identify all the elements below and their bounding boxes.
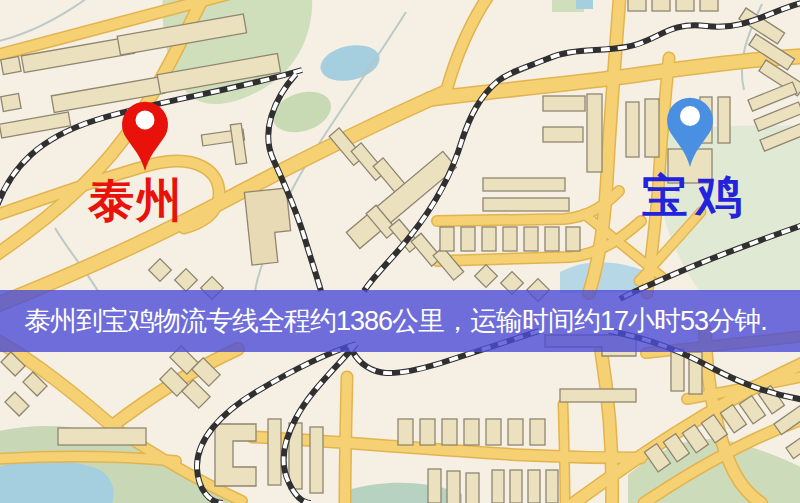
map-canvas — [0, 0, 800, 503]
route-info-text: 泰州到宝鸡物流专线全程约1386公里，运输时间约17小时53分钟. — [24, 303, 767, 339]
origin-pin-hole — [136, 111, 155, 130]
destination-pin-hole — [680, 106, 700, 126]
route-info-banner: 泰州到宝鸡物流专线全程约1386公里，运输时间约17小时53分钟. — [0, 290, 800, 352]
logistics-route-map: 泰州 宝鸡 泰州到宝鸡物流专线全程约1386公里，运输时间约17小时53分钟. — [0, 0, 800, 503]
destination-city-label: 宝鸡 — [642, 173, 750, 219]
origin-city-label: 泰州 — [88, 177, 184, 223]
